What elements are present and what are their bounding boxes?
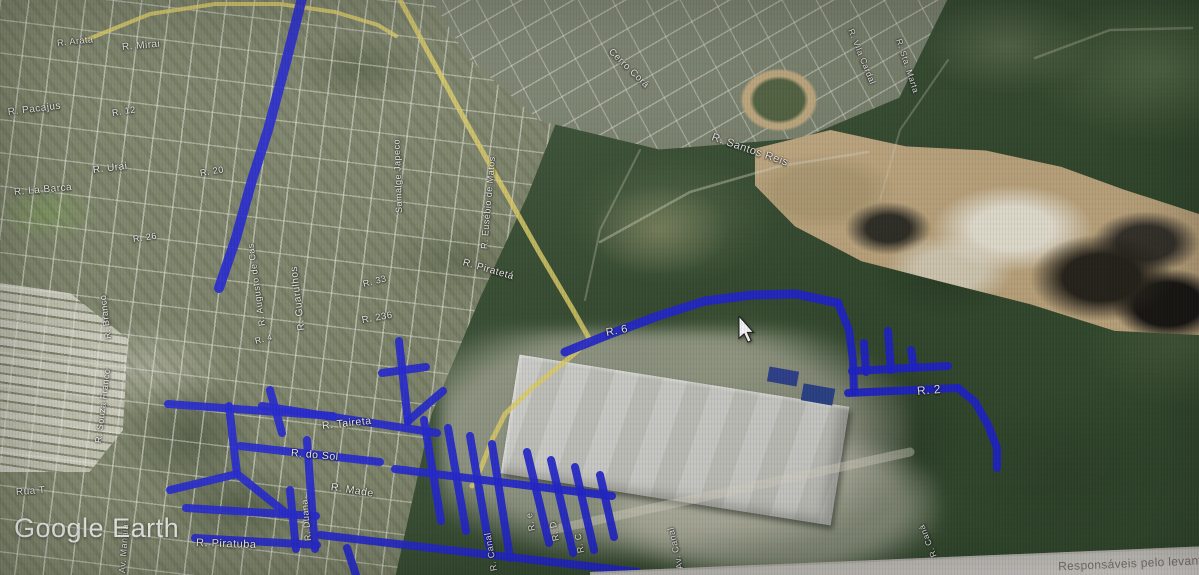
street-label: R. 33 — [362, 273, 388, 289]
street-label: Samalge Japeco — [391, 138, 404, 212]
street-label: R. Taireta — [321, 415, 372, 432]
footer-credit-text: Responsáveis pelo levanta — [1058, 553, 1199, 573]
street-label: R. Branco — [98, 294, 113, 339]
street-label: R. Guarulhos — [289, 265, 308, 331]
street-label: R. C — [573, 532, 586, 553]
street-label: R. 2 — [916, 382, 941, 398]
street-label: R. Sta. Marta — [894, 37, 921, 94]
street-label: R. e — [524, 511, 537, 531]
street-label: R. Caná — [916, 523, 938, 559]
street-label: R. 6 — [605, 322, 629, 338]
street-label: Av. Canal — [666, 526, 685, 570]
street-label: R. Urai — [92, 161, 128, 176]
street-label: R. Arata — [56, 34, 93, 48]
google-earth-screenshot: R. ArataR. MiraiR. PacajusR. 12R. UraiR.… — [0, 0, 1199, 575]
street-label: R. 26 — [132, 230, 157, 243]
mouse-cursor — [737, 316, 755, 343]
street-label: R. 20 — [199, 164, 224, 178]
street-label: Cerro Corá — [606, 47, 651, 91]
google-earth-watermark: Google Earth — [14, 513, 179, 544]
street-label: R. Piratuba — [196, 537, 257, 551]
street-label: R. D — [548, 520, 561, 541]
street-label: R. Mirai — [122, 39, 161, 53]
map-viewport[interactable]: R. ArataR. MiraiR. PacajusR. 12R. UraiR.… — [0, 0, 1199, 575]
street-label: R. Santos Reis — [710, 131, 790, 169]
street-label: R. Duana — [299, 498, 313, 541]
street-label: R. Eusébio de Matos — [479, 155, 497, 249]
street-label: Rua T — [16, 485, 46, 498]
street-label: R. do Sol — [290, 447, 339, 463]
street-label: R. Souza Franco — [93, 367, 112, 443]
street-label: R. Canal — [482, 531, 499, 571]
street-label: R. La Barca — [14, 182, 73, 198]
street-label: R. 12 — [111, 104, 136, 118]
street-label: R. 4 — [254, 332, 273, 346]
street-label: R. Made — [330, 481, 375, 500]
street-label: R. Piratetá — [461, 257, 515, 282]
street-label: R. 236 — [361, 310, 393, 326]
street-label: R. Vila Cardal — [846, 27, 877, 86]
street-label: R. Pacajus — [7, 101, 61, 118]
street-label: R. Augusto de Cas — [245, 242, 267, 326]
street-labels: R. ArataR. MiraiR. PacajusR. 12R. UraiR.… — [0, 0, 1199, 575]
